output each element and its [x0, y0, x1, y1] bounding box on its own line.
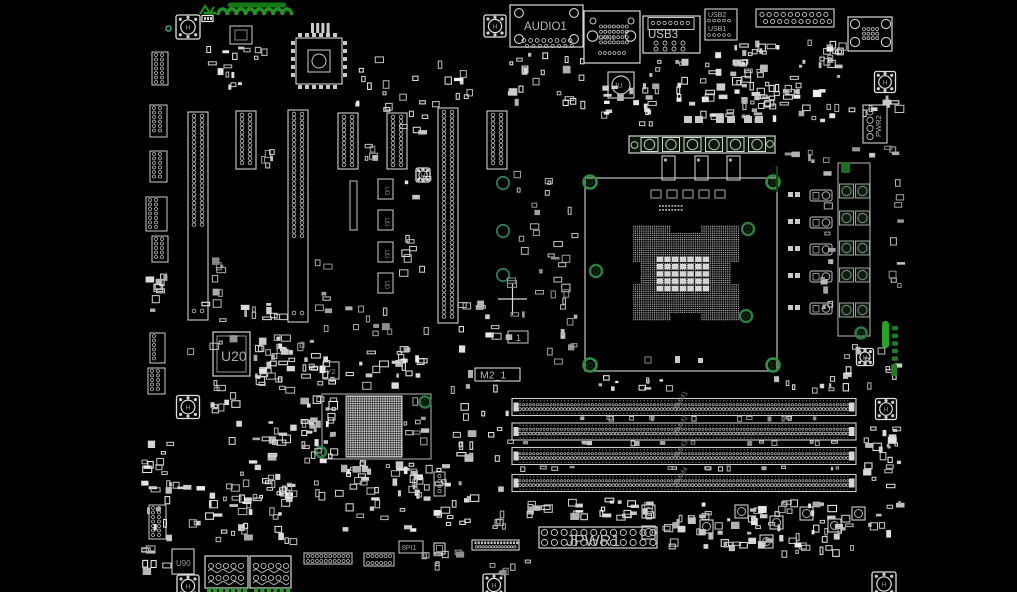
svg-text:H: H: [186, 585, 190, 591]
svg-text:U20: U20: [221, 348, 247, 364]
svg-text:UD: UD: [383, 218, 389, 227]
svg-text:U90: U90: [176, 559, 191, 568]
svg-text:M2_1: M2_1: [480, 370, 506, 382]
svg-text:JPWR1: JPWR1: [566, 533, 620, 550]
svg-text:Y2: Y2: [326, 367, 335, 376]
svg-text:H: H: [492, 584, 496, 590]
svg-text:UD: UD: [383, 250, 389, 259]
svg-text:H: H: [186, 406, 190, 412]
svg-text:H: H: [421, 174, 425, 180]
svg-text:AUDIO1: AUDIO1: [524, 21, 567, 33]
svg-text:1: 1: [516, 333, 521, 343]
svg-text:8PI1: 8PI1: [402, 545, 417, 552]
svg-text:PWR2: PWR2: [874, 115, 883, 137]
svg-text:H: H: [883, 81, 887, 87]
svg-text:USB3: USB3: [648, 29, 678, 41]
svg-text:H: H: [884, 408, 888, 414]
svg-text:LAN1: LAN1: [598, 35, 616, 42]
svg-text:H: H: [186, 26, 190, 32]
svg-text:H: H: [882, 583, 886, 589]
svg-text:USB1: USB1: [708, 26, 726, 33]
svg-text:USB2: USB2: [708, 12, 726, 19]
svg-text:UD: UD: [383, 187, 389, 196]
svg-text:UD: UD: [383, 281, 389, 290]
svg-text:H: H: [493, 25, 497, 31]
